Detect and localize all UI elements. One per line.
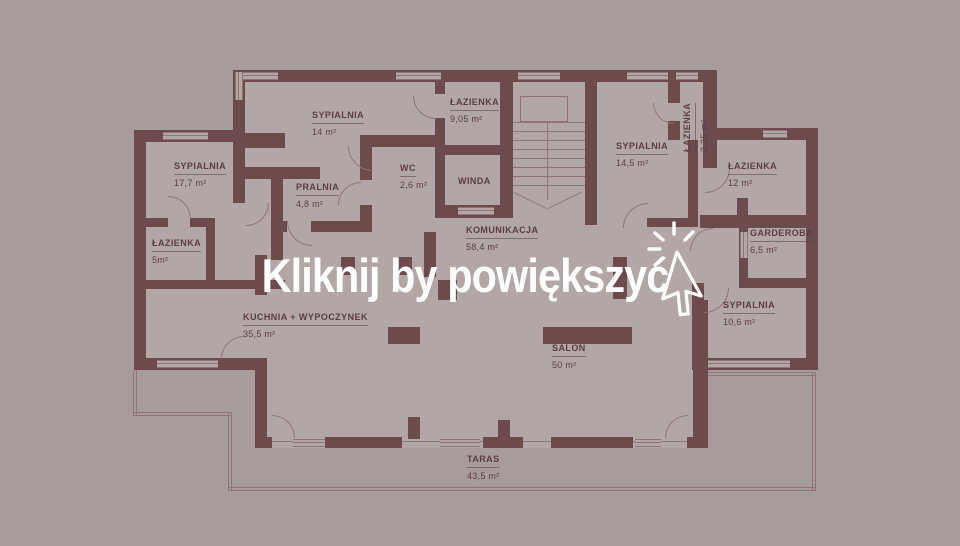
room-area: 2,35 m² bbox=[699, 103, 710, 152]
wall-segment bbox=[703, 128, 818, 140]
wall-segment bbox=[739, 278, 806, 288]
room-label-sypialnia-1: SYPIALNIA 17,7 m² bbox=[174, 161, 226, 189]
room-label-salon: SALON 50 m² bbox=[552, 343, 586, 371]
room-name: SYPIALNIA bbox=[312, 110, 364, 124]
wall-segment bbox=[543, 327, 632, 344]
arrow-pointer bbox=[660, 252, 712, 318]
room-area: 6,5 m² bbox=[750, 245, 813, 256]
wall-segment bbox=[245, 167, 320, 179]
room-label-lazienka-905: ŁAZIENKA 9,05 m² bbox=[450, 97, 499, 125]
room-area: 17,7 m² bbox=[174, 178, 226, 189]
window-icon bbox=[235, 72, 243, 100]
room-name: SYPIALNIA bbox=[616, 141, 668, 155]
room-label-lazienka-235: ŁAZIENKA 2,35 m² bbox=[682, 103, 710, 152]
wall-segment bbox=[360, 205, 372, 232]
terrace-edge-line bbox=[228, 487, 816, 491]
window-icon bbox=[676, 72, 698, 80]
wall-segment bbox=[737, 198, 748, 215]
window-icon bbox=[627, 72, 668, 80]
room-label-kuchnia: KUCHNIA + WYPOCZYNEK 35,5 m² bbox=[243, 312, 368, 340]
room-name: ŁAZIENKA bbox=[728, 161, 777, 175]
window-icon bbox=[440, 439, 480, 447]
floorplan[interactable]: SYPIALNIA 17,7 m² ŁAZIENKA 5m² SYPIALNIA… bbox=[0, 0, 960, 546]
wall-segment bbox=[271, 221, 287, 232]
staircase-landing bbox=[520, 96, 568, 122]
room-label-sypialnia-4: SYPIALNIA 10,6 m² bbox=[723, 300, 775, 328]
click-burst-rays bbox=[649, 223, 693, 265]
window-icon bbox=[157, 360, 218, 368]
wall-segment bbox=[206, 218, 215, 289]
terrace-edge-line bbox=[133, 412, 232, 416]
window-icon bbox=[763, 130, 787, 138]
enlarge-cta[interactable]: Kliknij by powiększyć bbox=[262, 248, 669, 303]
room-name: PRALNIA bbox=[296, 182, 339, 196]
window-icon bbox=[293, 439, 325, 447]
wall-segment bbox=[255, 358, 267, 448]
room-area: 35,5 m² bbox=[243, 329, 368, 340]
wall-segment bbox=[134, 218, 168, 227]
room-name: GARDEROBA bbox=[750, 228, 813, 242]
room-name: WC bbox=[400, 163, 416, 177]
wall-segment bbox=[500, 70, 513, 218]
wall-segment bbox=[668, 121, 680, 140]
wall-segment bbox=[271, 173, 283, 260]
room-label-lazienka-5: ŁAZIENKA 5m² bbox=[152, 238, 201, 266]
window-icon bbox=[458, 207, 494, 215]
floor-area bbox=[255, 360, 708, 448]
room-area: 5m² bbox=[152, 255, 201, 266]
room-label-garderoba: GARDEROBA 6,5 m² bbox=[750, 228, 813, 256]
room-area: 50 m² bbox=[552, 360, 586, 371]
wall-segment bbox=[551, 437, 633, 448]
room-area: 9,05 m² bbox=[450, 114, 499, 125]
terrace-edge-line bbox=[228, 412, 232, 491]
room-name: WINDA bbox=[458, 176, 491, 189]
wall-segment bbox=[325, 437, 402, 448]
room-name: ŁAZIENKA bbox=[450, 97, 499, 111]
room-label-lazienka-12: ŁAZIENKA 12 m² bbox=[728, 161, 777, 189]
terrace-edge-line bbox=[133, 370, 137, 416]
room-name: SYPIALNIA bbox=[723, 300, 775, 314]
room-name: SALON bbox=[552, 343, 586, 357]
window-icon bbox=[635, 439, 661, 447]
staircase-divider bbox=[547, 122, 548, 200]
room-label-winda: WINDA bbox=[458, 176, 491, 189]
room-name: KOMUNIKACJA bbox=[466, 225, 538, 239]
room-label-wc: WC 2,6 m² bbox=[400, 163, 427, 191]
window-icon bbox=[396, 72, 441, 80]
room-area: 14,5 m² bbox=[616, 158, 668, 169]
room-name: TARAS bbox=[467, 454, 500, 468]
room-area: 43,5 m² bbox=[467, 471, 500, 482]
room-name: KUCHNIA + WYPOCZYNEK bbox=[243, 312, 368, 326]
wall-segment bbox=[688, 140, 698, 222]
wall-segment bbox=[388, 327, 420, 344]
wall-segment bbox=[134, 130, 146, 370]
window-icon bbox=[163, 132, 208, 140]
room-label-sypialnia-3: SYPIALNIA 14,5 m² bbox=[616, 141, 668, 169]
wall-segment bbox=[255, 437, 272, 448]
room-label-taras: TARAS 43,5 m² bbox=[467, 454, 500, 482]
wall-segment bbox=[585, 70, 597, 225]
wall-segment bbox=[435, 118, 445, 218]
terrace-edge-line bbox=[812, 372, 816, 491]
room-area: 2,6 m² bbox=[400, 180, 427, 191]
room-name: ŁAZIENKA bbox=[152, 238, 201, 252]
room-area: 4,8 m² bbox=[296, 199, 339, 210]
staircase-icon bbox=[513, 122, 585, 194]
room-label-sypialnia-2: SYPIALNIA 14 m² bbox=[312, 110, 364, 138]
room-label-pralnia: PRALNIA 4,8 m² bbox=[296, 182, 339, 210]
window-icon bbox=[740, 232, 748, 258]
room-area: 14 m² bbox=[312, 127, 364, 138]
wall-segment bbox=[242, 133, 285, 148]
window-icon bbox=[240, 72, 278, 80]
room-area: 12 m² bbox=[728, 178, 777, 189]
window-icon bbox=[708, 360, 790, 368]
room-name: SYPIALNIA bbox=[174, 161, 226, 175]
wall-segment bbox=[498, 420, 510, 439]
room-area: 10,6 m² bbox=[723, 317, 775, 328]
wall-segment bbox=[408, 417, 420, 439]
cursor-click-icon bbox=[636, 218, 728, 318]
terrace-edge-line bbox=[708, 372, 816, 376]
window-icon bbox=[518, 72, 560, 80]
room-name: ŁAZIENKA bbox=[682, 103, 696, 152]
